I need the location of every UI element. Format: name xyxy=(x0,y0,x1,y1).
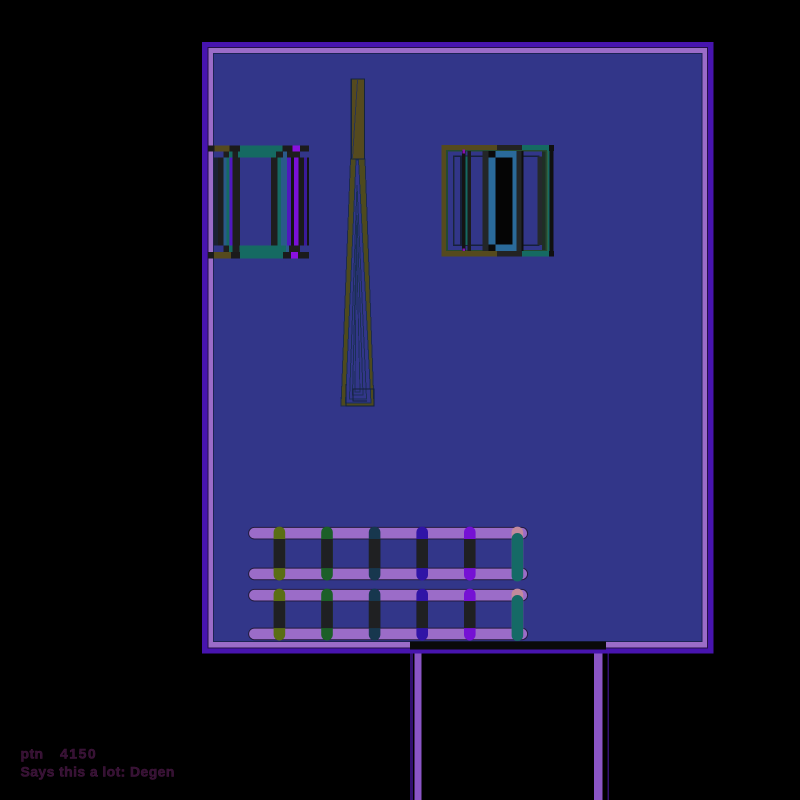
svg-text:4150: 4150 xyxy=(60,746,97,762)
svg-text:ptn: ptn xyxy=(21,746,44,762)
svg-text:Says this a lot: Degen: Says this a lot: Degen xyxy=(21,764,175,780)
